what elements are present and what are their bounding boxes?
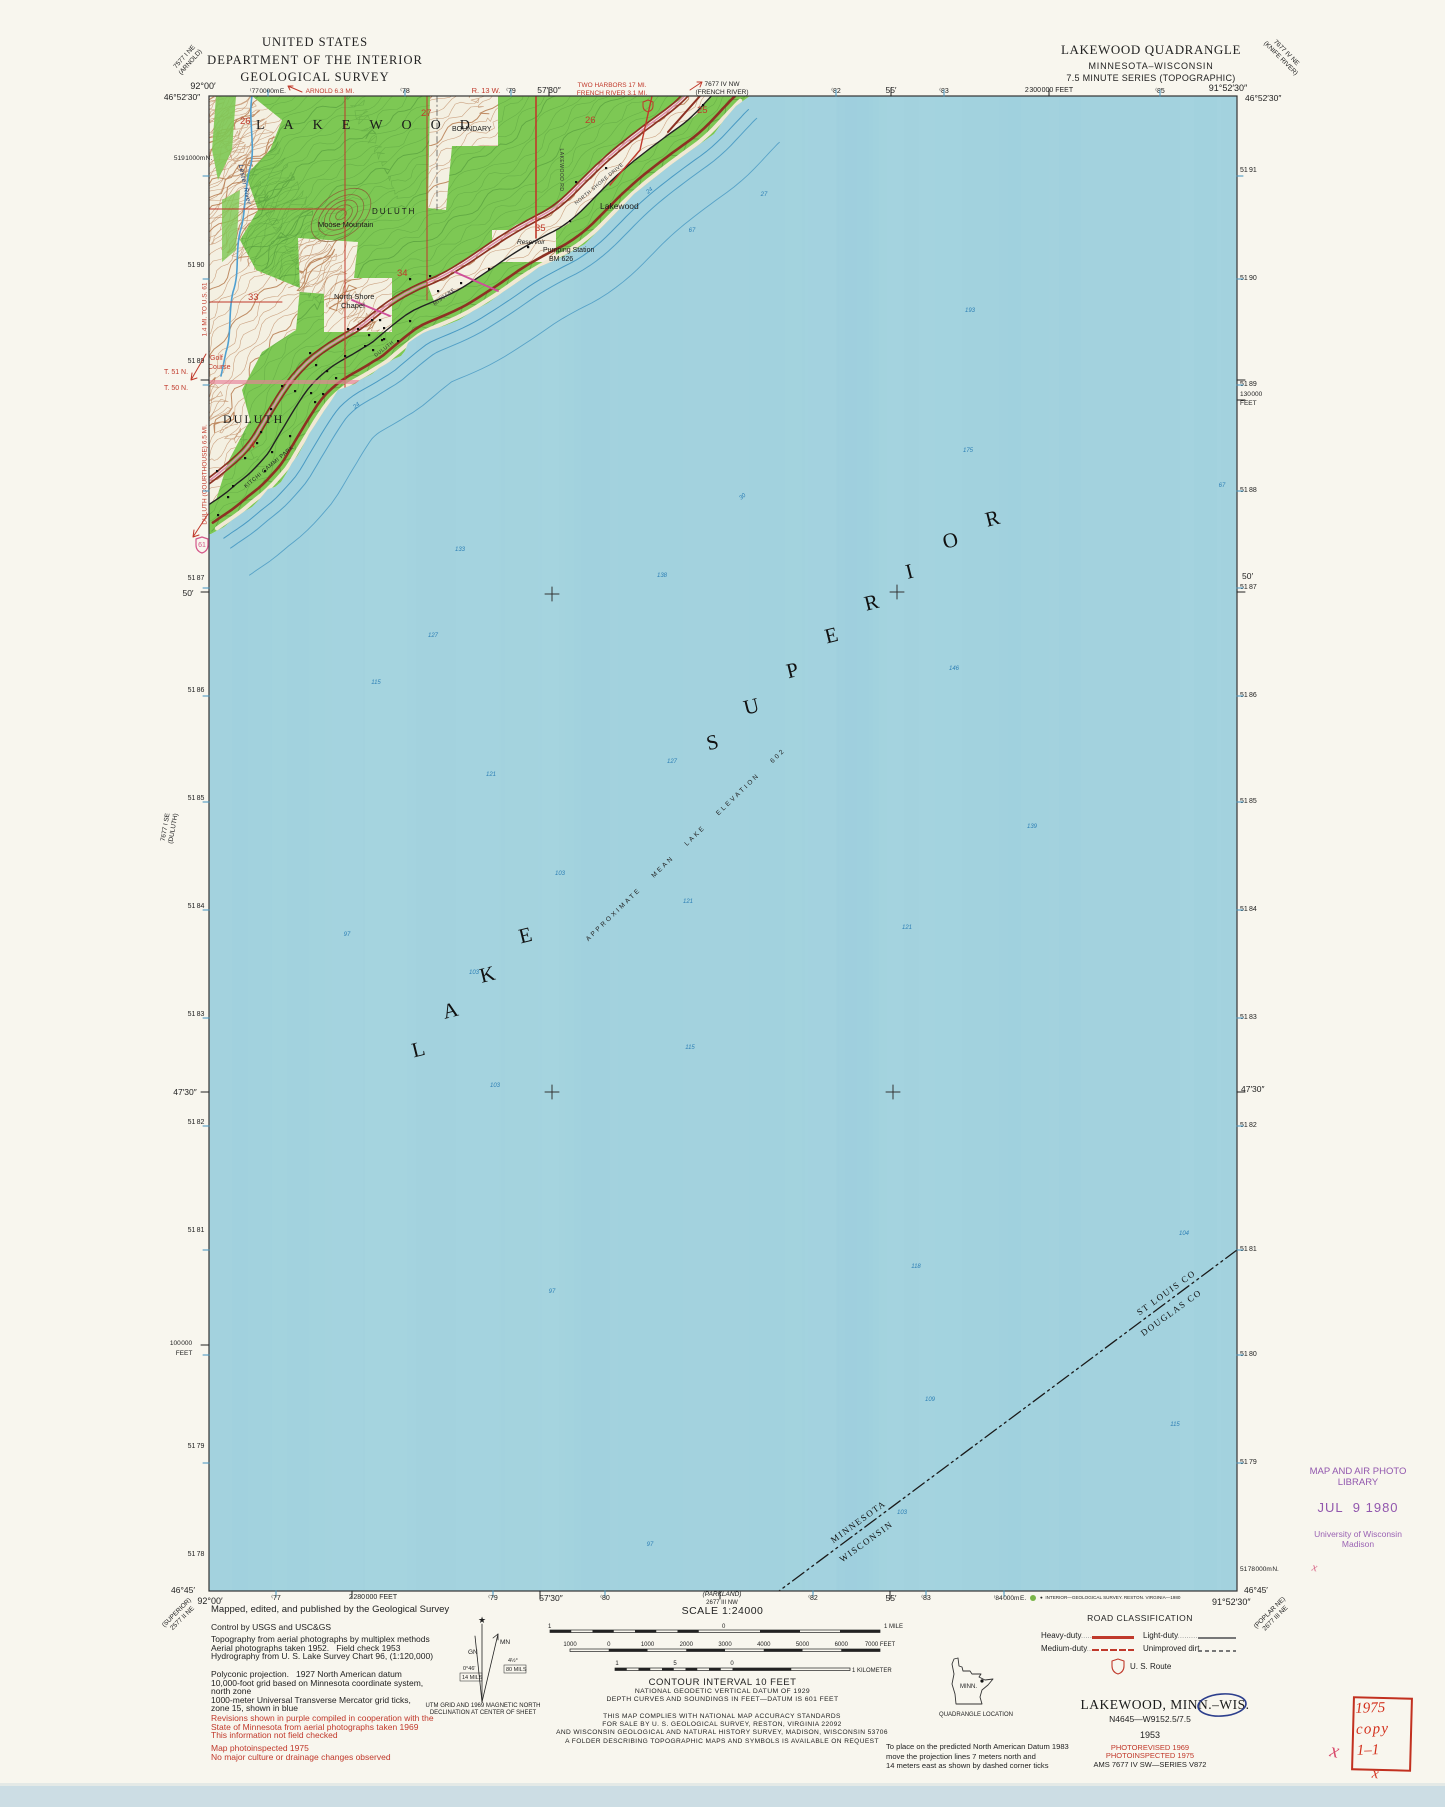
svg-text:6000: 6000	[835, 1642, 849, 1648]
svg-text:5000: 5000	[796, 1642, 810, 1648]
svg-text:4½°: 4½°	[508, 1657, 518, 1664]
svg-text:1: 1	[615, 1661, 619, 1667]
svg-text:1 MILE: 1 MILE	[884, 1624, 903, 1630]
svg-text:1: 1	[548, 1624, 552, 1630]
svg-text:0: 0	[722, 1624, 726, 1630]
svg-text:4000: 4000	[757, 1642, 771, 1648]
svg-text:MINN.: MINN.	[960, 1684, 977, 1690]
svg-text:1000: 1000	[563, 1642, 577, 1648]
svg-text:0°46′: 0°46′	[463, 1666, 475, 1672]
svg-text:14 MILS: 14 MILS	[462, 1675, 483, 1681]
svg-text:5: 5	[673, 1661, 677, 1667]
svg-text:2000: 2000	[680, 1642, 694, 1648]
svg-text:7000 FEET: 7000 FEET	[865, 1642, 896, 1648]
svg-text:0: 0	[607, 1642, 611, 1648]
svg-text:★: ★	[478, 1615, 486, 1625]
svg-text:MN: MN	[500, 1639, 510, 1646]
svg-text:GN: GN	[468, 1649, 478, 1656]
svg-text:3000: 3000	[718, 1642, 732, 1648]
svg-text:1 KILOMETER: 1 KILOMETER	[852, 1668, 892, 1674]
svg-text:0: 0	[730, 1661, 734, 1667]
svg-text:80 MILS: 80 MILS	[506, 1667, 527, 1673]
svg-text:1000: 1000	[641, 1642, 655, 1648]
